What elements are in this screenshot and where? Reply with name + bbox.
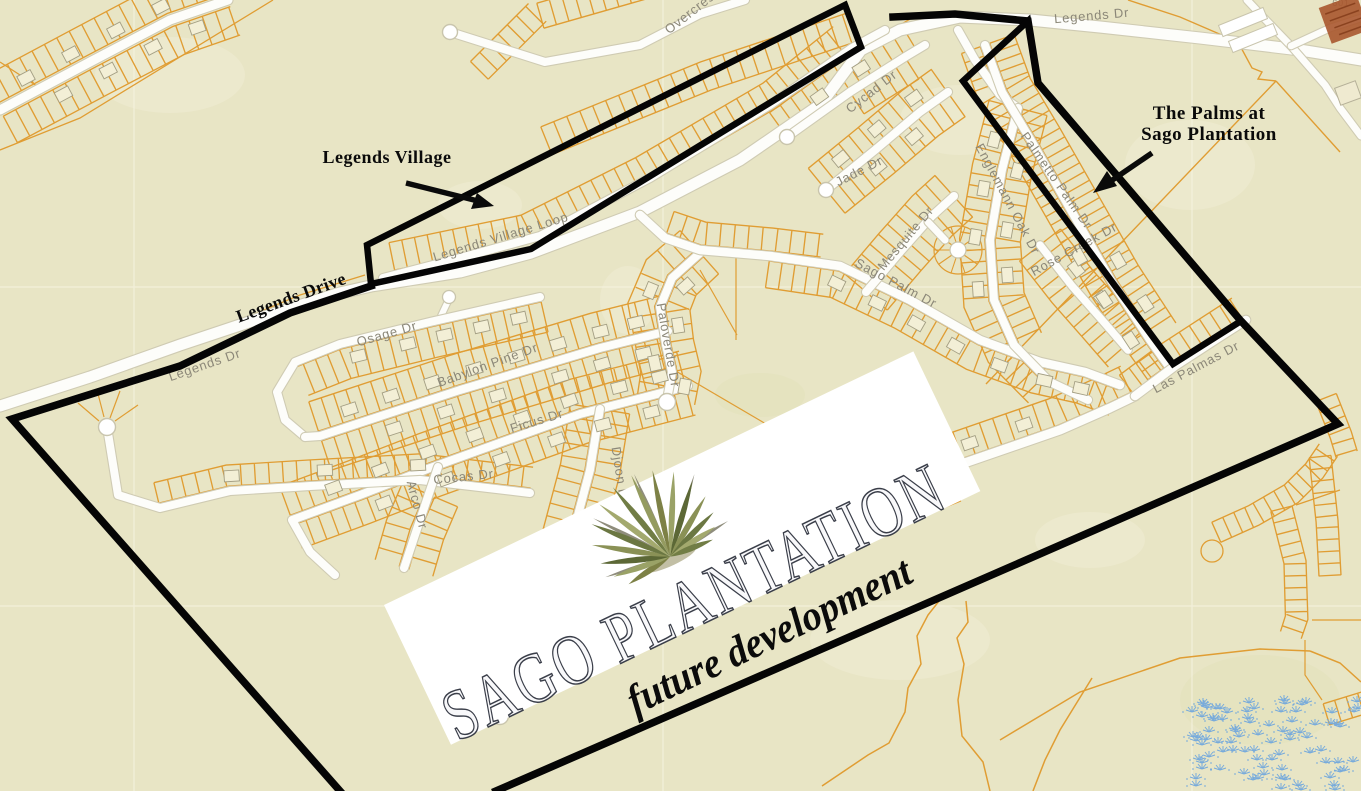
svg-text:Sago Plantation: Sago Plantation: [1141, 124, 1277, 145]
svg-text:The Palms at: The Palms at: [1153, 103, 1266, 124]
svg-text:Legends Village: Legends Village: [322, 147, 451, 167]
